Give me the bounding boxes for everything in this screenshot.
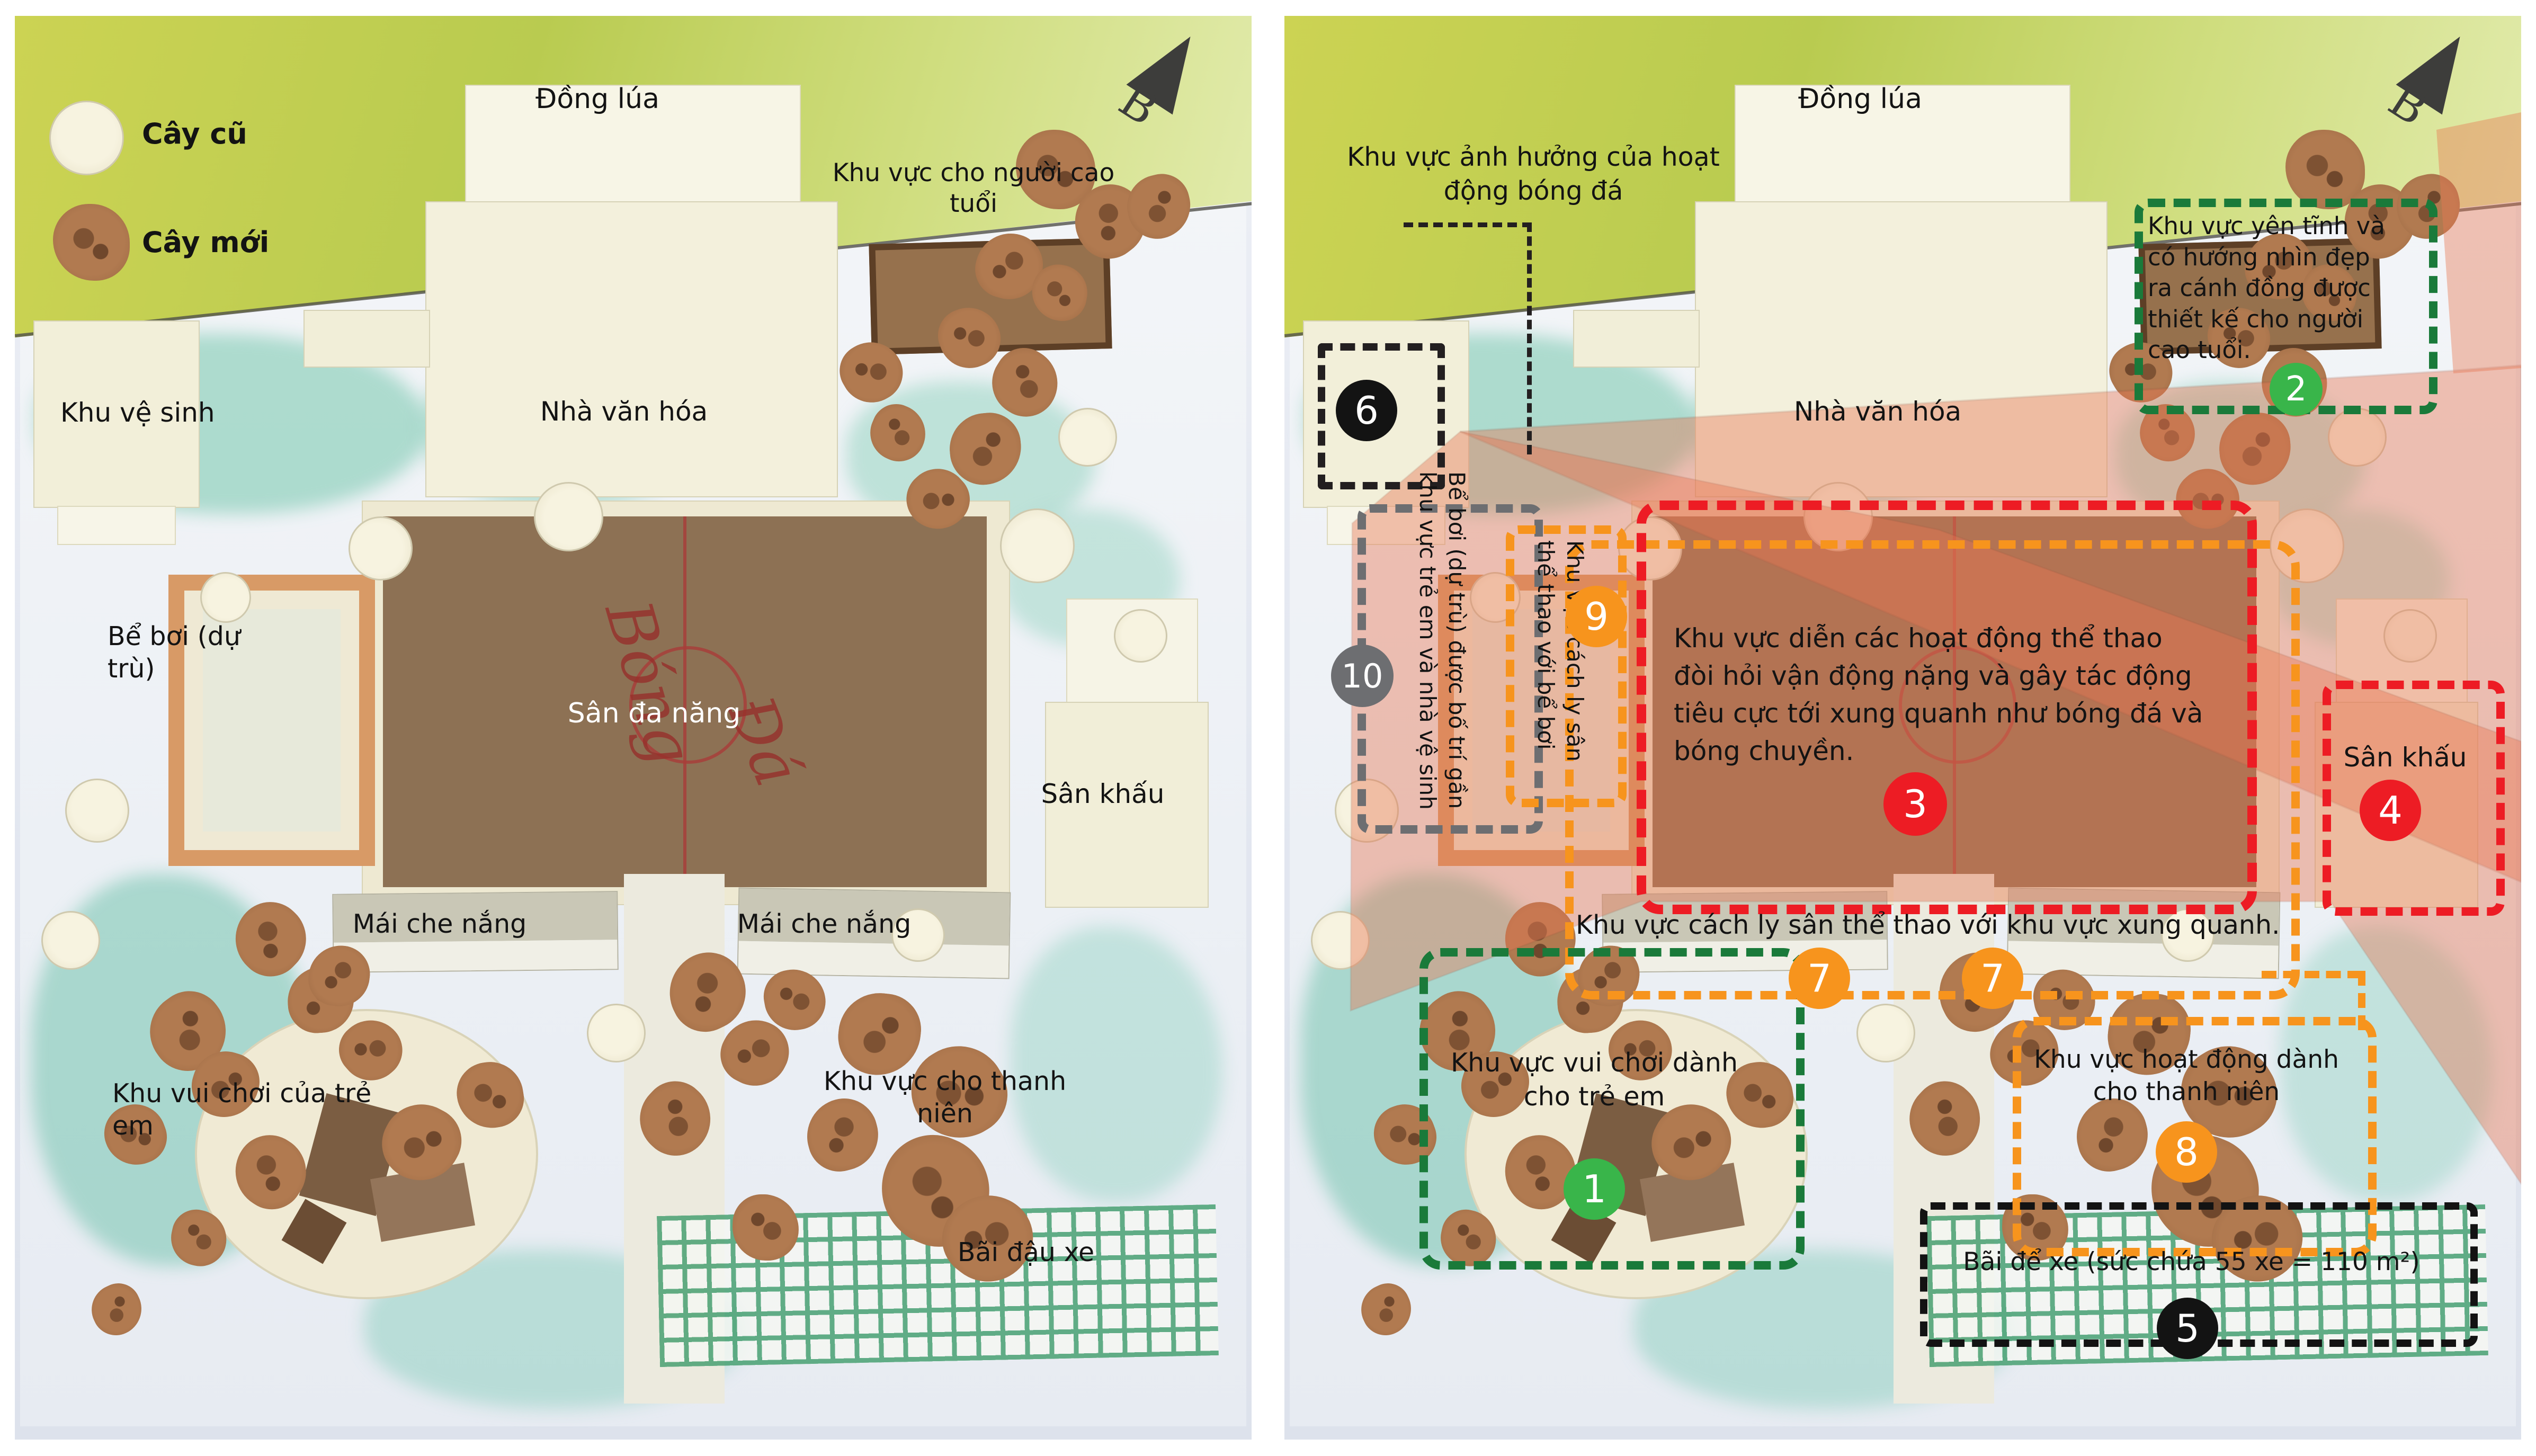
zone-10-text: Bể bơi (dự trù) được bố trí gần khu vực … [1403, 471, 1471, 853]
zone-3-text: Khu vực diễn các hoạt động thể thao đòi … [1674, 620, 2209, 770]
site-plan-diagram: Cây cũ Cây mới B Đồng lúa Khu vực cho ng… [0, 0, 2536, 1456]
marker-3: 3 [1883, 772, 1947, 836]
marker-5: 5 [2157, 1298, 2218, 1359]
toilet-label: Khu vệ sinh [60, 396, 215, 429]
shade-roof-label-right: Mái che nắng [737, 908, 911, 941]
youth-area-label: Khu vực cho thanh niên [807, 1066, 1083, 1130]
marker-8: 8 [2156, 1121, 2217, 1183]
marker-10: 10 [1331, 645, 1394, 707]
parking-label: Bãi đậu xe [958, 1237, 1094, 1269]
left-model-panel: Cây cũ Cây mới B Đồng lúa Khu vực cho ng… [15, 16, 1252, 1440]
legend-new-tree-label: Cây mới [142, 225, 269, 261]
zone-8-text: Khu vực hoạt động dành cho thanh niên [2022, 1043, 2351, 1108]
zone-4-text: Sân khấu [2323, 740, 2488, 775]
cultural-house-building [425, 201, 838, 497]
marker-4: 4 [2360, 780, 2421, 841]
marker-6: 6 [1336, 380, 1397, 441]
rice-field-label: Đồng lúa [535, 82, 659, 116]
rice-field-label: Đồng lúa [1798, 82, 1922, 116]
marker-7b: 7 [1962, 948, 2023, 1009]
marker-7a: 7 [1789, 948, 1850, 1009]
shade-roof-label-left: Mái che nắng [353, 908, 526, 941]
zone-5-text: Bãi để xe (sức chứa 55 xe = 110 m²) [1920, 1246, 2463, 1278]
leader-line [1527, 222, 1532, 454]
stage-label: Sân khấu [1041, 778, 1165, 810]
toilet-step [57, 506, 176, 545]
buffer-connector [2262, 971, 2362, 978]
walkway-block [303, 310, 430, 368]
cultural-house-label: Nhà văn hóa [540, 395, 708, 428]
buffer-connector [2358, 971, 2365, 1030]
marker-1: 1 [1564, 1158, 1625, 1220]
right-annotated-panel: B Đồng lúa Nhà văn hóa Khu vực ảnh hưởng… [1284, 16, 2521, 1440]
marker-9: 9 [1566, 586, 1627, 647]
elderly-area-label: Khu vực cho người cao tuổi [825, 158, 1122, 220]
zone-2-text: Khu vực yên tĩnh và có hướng nhìn đẹp ra… [2148, 211, 2402, 366]
football-note: Khu vực ảnh hưởng của hoạt động bóng đá [1337, 140, 1729, 208]
zone-7-text: Khu vực cách ly sân thể thao với khu vực… [1576, 908, 2280, 942]
cultural-house-label: Nhà văn hóa [1794, 395, 1961, 428]
old-tree [65, 779, 129, 843]
pool-label: Bể bơi (dự trù) [108, 621, 251, 685]
multi-court-label: Sân đa năng [568, 696, 741, 730]
zone-1-text: Khu vực vui chơi dành cho trẻ em [1441, 1046, 1748, 1113]
marker-2: 2 [2270, 363, 2323, 416]
children-play-label: Khu vui chơi của trẻ em [112, 1078, 377, 1142]
old-tree-legend-icon [49, 101, 124, 175]
legend-old-tree-label: Cây cũ [142, 117, 247, 152]
zone-9-text: Khu vực cách ly sân thể thao với bể bơi [1526, 540, 1589, 784]
leader-line [1404, 222, 1532, 227]
